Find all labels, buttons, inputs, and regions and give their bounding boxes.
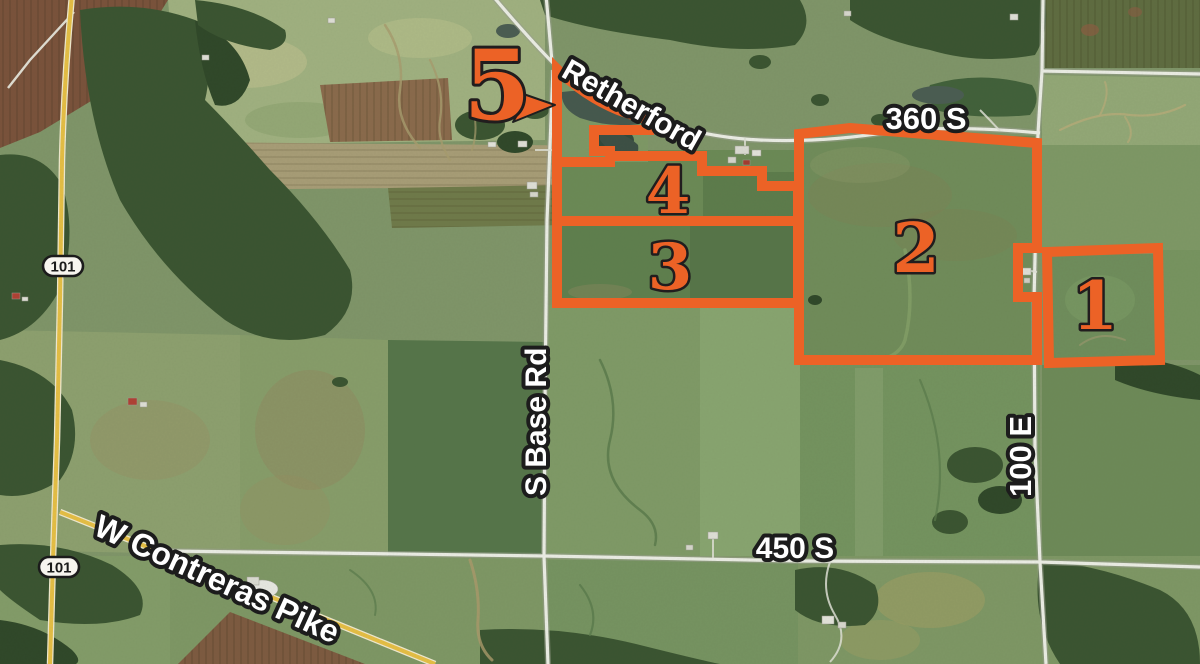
label-360-s: 360 S xyxy=(885,101,966,136)
route-101-shield-south-number: 101 xyxy=(46,560,71,577)
tract-number-1: 1 xyxy=(1072,267,1118,345)
route-101-shield-north: 101 xyxy=(43,256,83,276)
label-100-e: 100 E xyxy=(1003,416,1038,497)
label-450-s: 450 S xyxy=(756,532,834,565)
route-101-shield-north-number: 101 xyxy=(50,259,75,276)
tract-number-2: 2 xyxy=(892,209,939,289)
route-101-shield-south: 101 xyxy=(39,557,79,577)
tract-number-3: 3 xyxy=(648,230,693,305)
label-s-base-rd: S Base Rd xyxy=(520,348,553,496)
aerial-map: 5 4 3 2 1 Retherford 360 S S Base Rd 100… xyxy=(0,0,1200,664)
tract-number-4: 4 xyxy=(646,154,691,229)
tract-number-5: 5 xyxy=(464,29,531,142)
